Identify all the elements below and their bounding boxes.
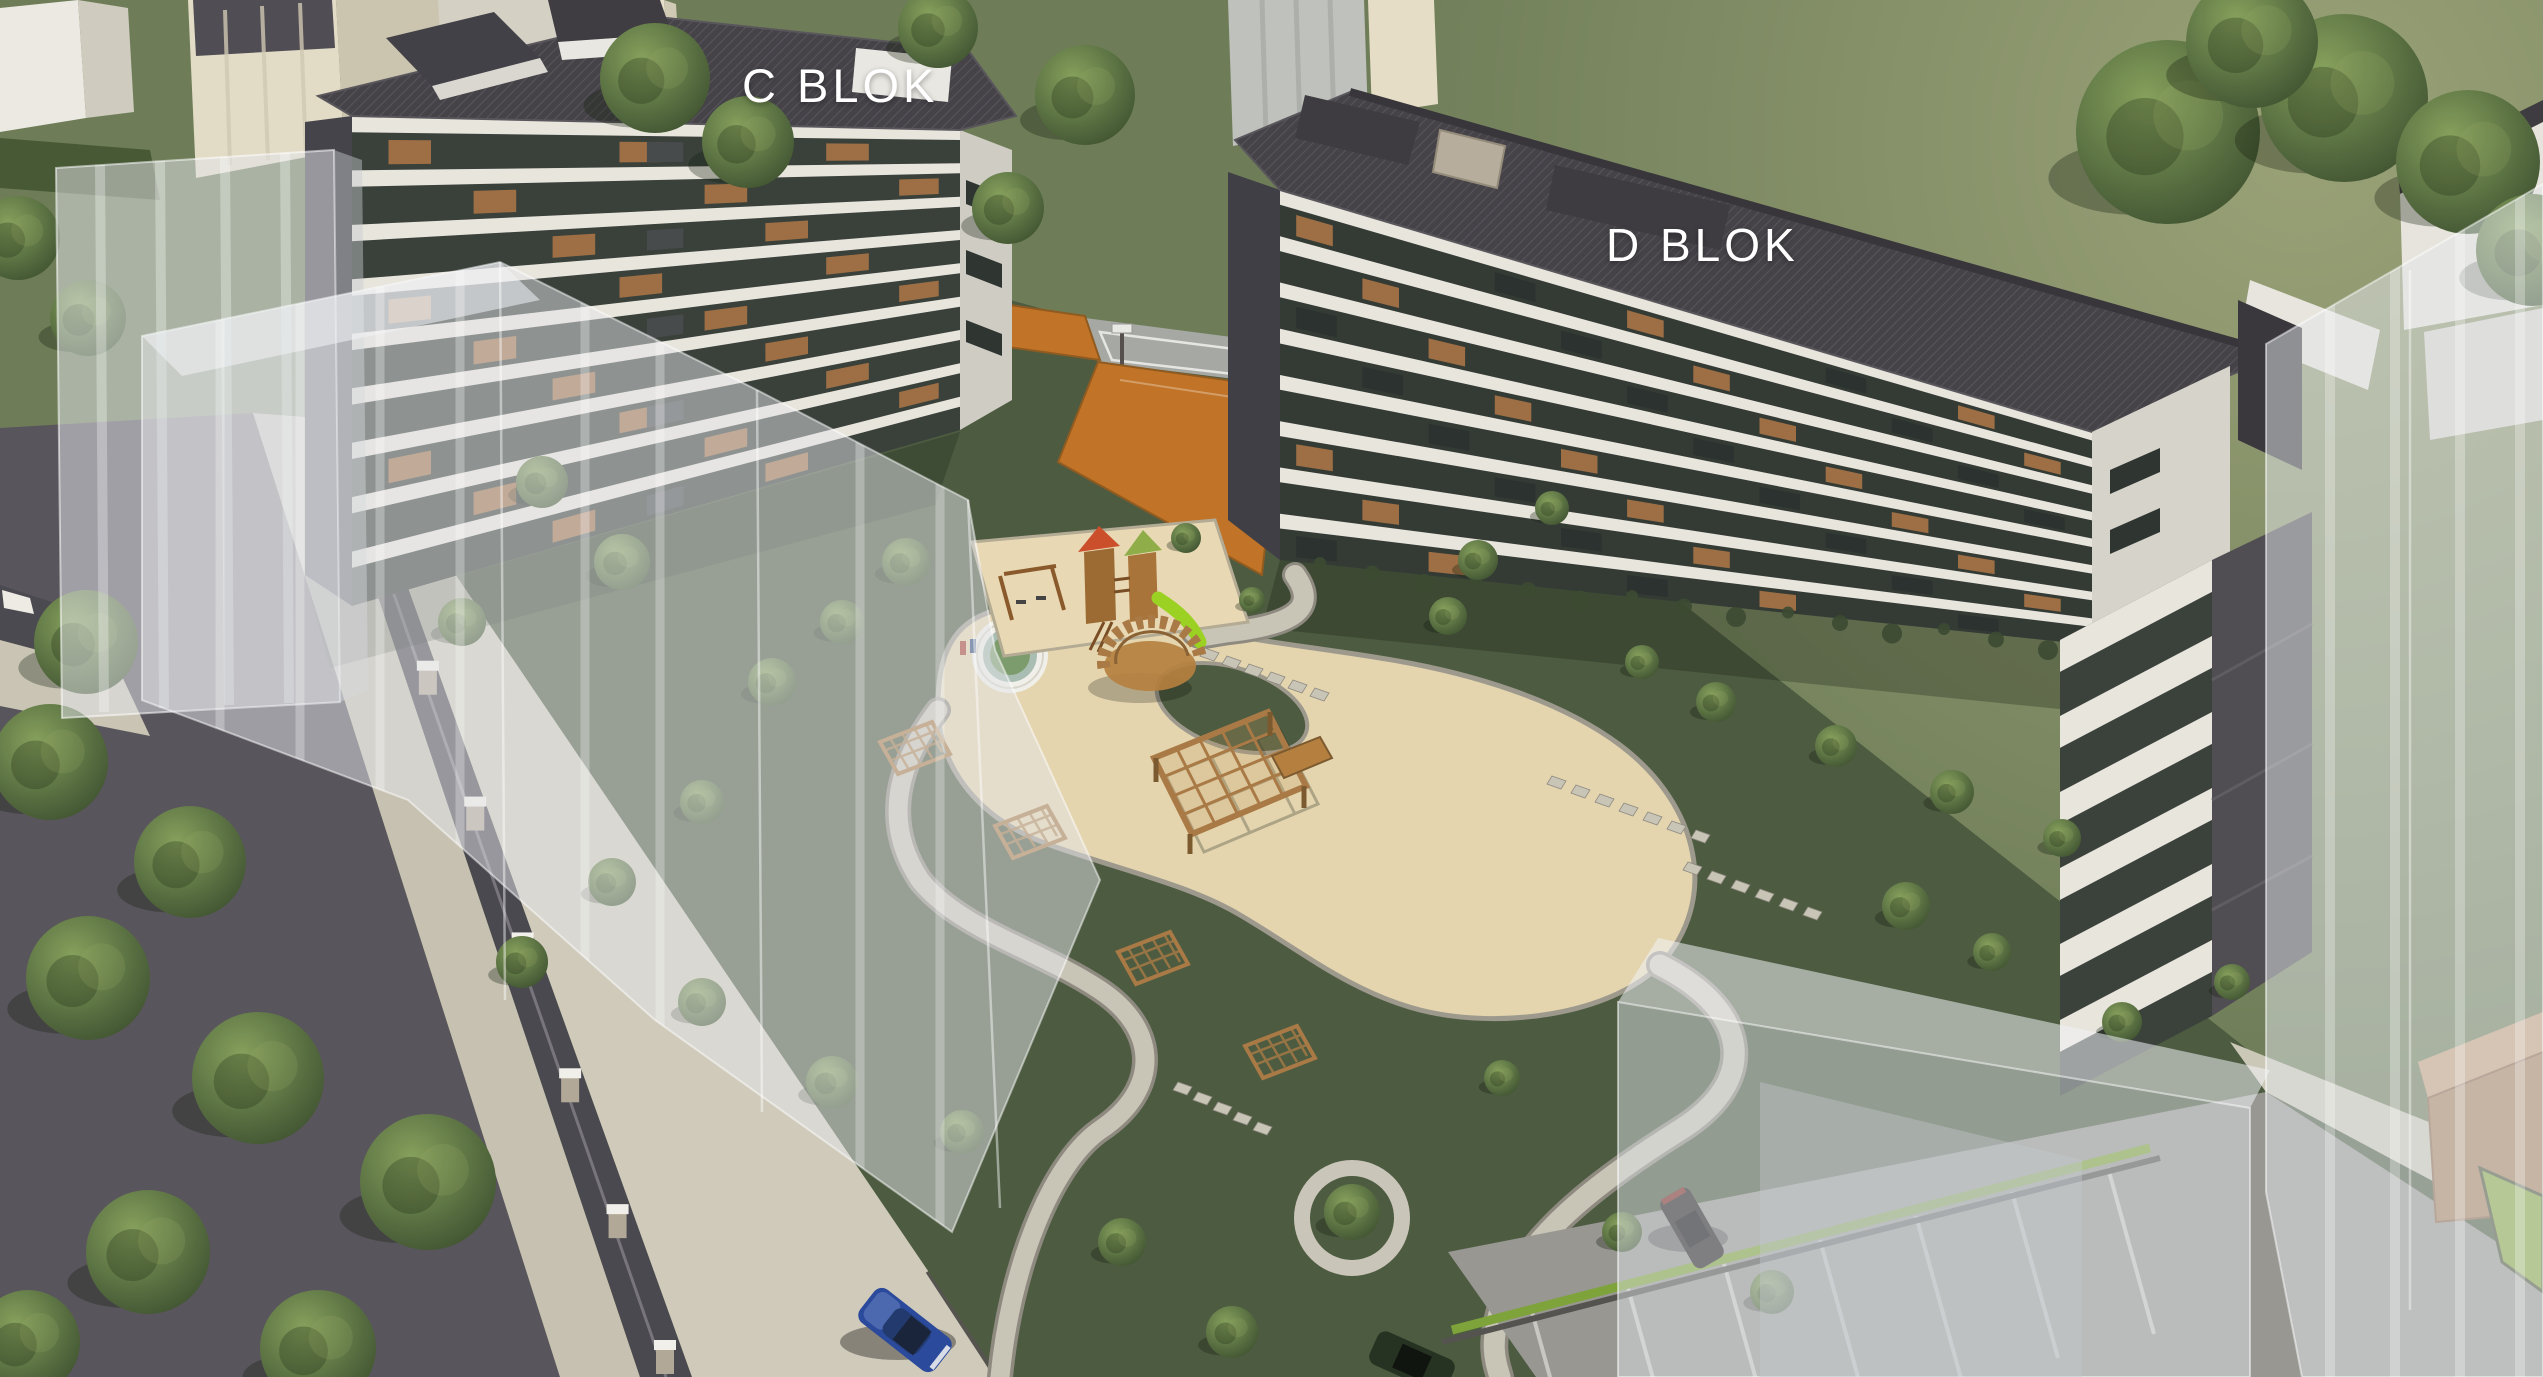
ghost-right-slab bbox=[2266, 170, 2543, 1377]
neighbor-building-white bbox=[0, 0, 86, 132]
c-blok-label: C BLOK bbox=[742, 58, 938, 113]
scene-svg bbox=[0, 0, 2543, 1377]
play-tower bbox=[1128, 552, 1158, 622]
play-tower bbox=[1084, 548, 1116, 624]
d-blok-end-wall bbox=[1228, 172, 1280, 560]
d-blok-label: D BLOK bbox=[1606, 218, 1799, 272]
render-viewport: C BLOK D BLOK bbox=[0, 0, 2543, 1377]
